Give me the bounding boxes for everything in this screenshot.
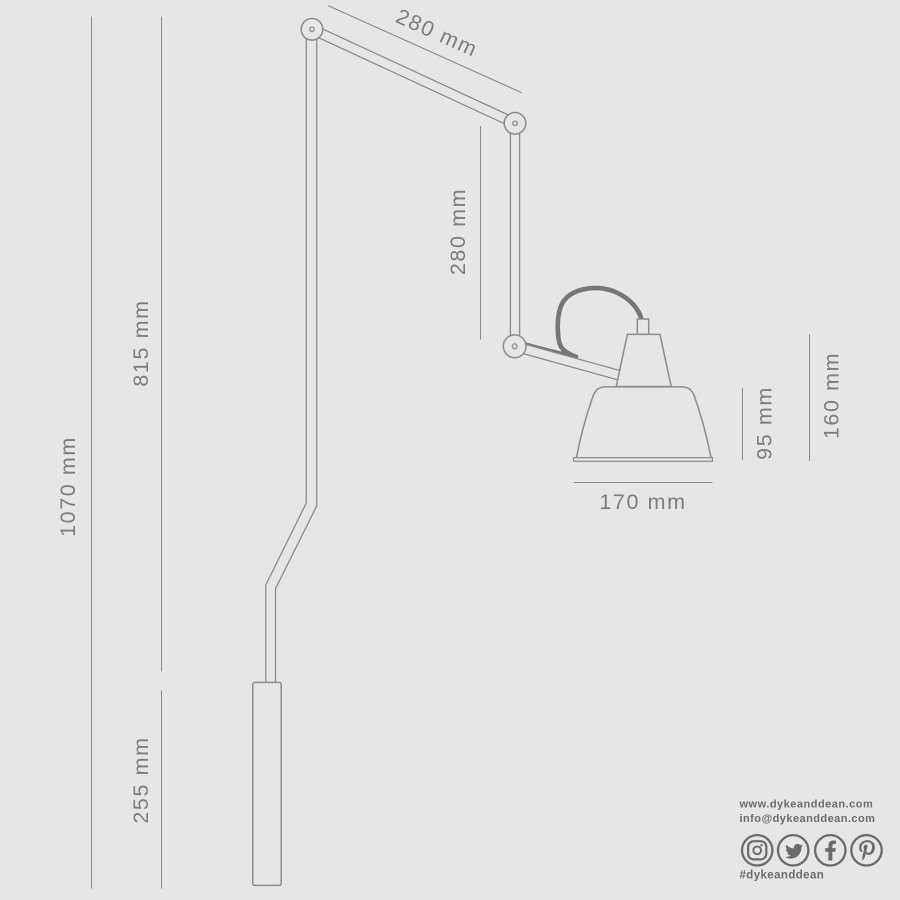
svg-text:160 mm: 160 mm xyxy=(820,352,844,439)
svg-text:170 mm: 170 mm xyxy=(599,490,686,514)
svg-text:815 mm: 815 mm xyxy=(129,299,153,386)
svg-text:#dykeanddean: #dykeanddean xyxy=(740,870,825,882)
svg-text:www.dykeanddean.com: www.dykeanddean.com xyxy=(739,798,874,810)
svg-text:280 mm: 280 mm xyxy=(446,188,470,275)
svg-text:info@dykeanddean.com: info@dykeanddean.com xyxy=(740,813,876,825)
svg-text:1070 mm: 1070 mm xyxy=(56,436,80,537)
svg-text:255 mm: 255 mm xyxy=(129,736,153,823)
svg-text:95 mm: 95 mm xyxy=(753,386,777,460)
